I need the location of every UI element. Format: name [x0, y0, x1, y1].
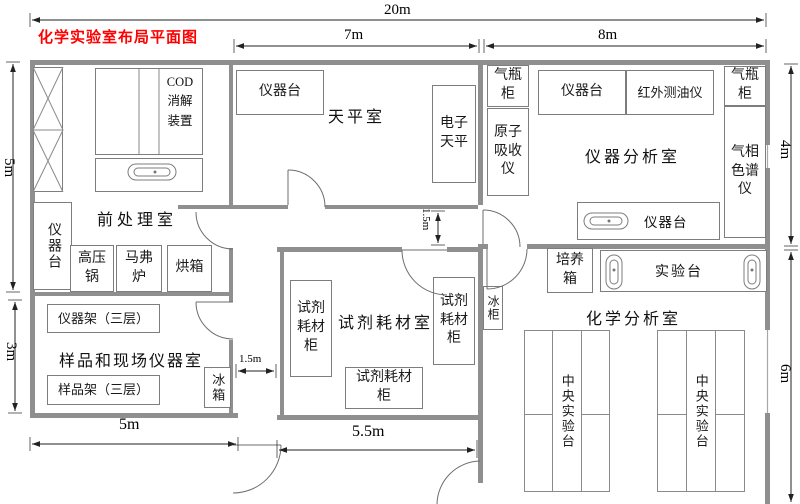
- atomic-absorption: 原子吸收仪: [487, 108, 529, 196]
- central-bench-1-split: [524, 414, 552, 415]
- central-bench-1-split: [581, 414, 610, 415]
- wall-pretreat-sample-divider: [30, 292, 233, 296]
- wall-pretreat-east-a: [229, 60, 233, 205]
- sample-rack: 样品架（三层）: [47, 375, 160, 405]
- reagent-cabinet-left: 试剂耗材柜: [290, 280, 332, 377]
- balance-instrument-bench: 仪器台: [236, 70, 324, 115]
- central-bench-1-label: 中央实验台: [552, 336, 582, 486]
- autoclave: 高压锅: [70, 245, 114, 292]
- fridge: 冰箱: [204, 367, 231, 408]
- room-label-reagent: 试剂耗材室: [338, 309, 433, 333]
- incubator: 培养箱: [547, 248, 593, 293]
- gas-chromatograph: 气相色谱仪: [724, 106, 766, 238]
- room-label-chemical: 化学分析室: [586, 305, 681, 329]
- dim-sample-width: 5m: [119, 416, 139, 434]
- plan-title: 化学实验室布局平面图: [38, 26, 198, 47]
- central-bench-2-label: 中央实验台: [686, 336, 716, 486]
- door-chemical: [487, 249, 527, 289]
- door-pretreatment: [196, 212, 233, 249]
- wall-hall-right: [478, 418, 483, 483]
- instrument-rack: 仪器架（三层）: [47, 304, 160, 333]
- door-balance: [288, 170, 325, 207]
- dim-sample-height: 3m: [2, 342, 19, 361]
- gas-cylinder-cabinet-right: 气瓶柜: [724, 66, 766, 106]
- wall-reagent-bottom: [277, 415, 482, 420]
- wall-corridor-top-a: [178, 205, 288, 209]
- pretreat-instrument-bench: 仪器台: [33, 202, 72, 290]
- wall-chemical-west: [478, 247, 483, 418]
- dim-balance-width: 7m: [344, 27, 363, 44]
- fume-cabinet-hatched: [33, 67, 63, 192]
- wall-top: [30, 60, 770, 65]
- dim-instrument-width: 8m: [598, 27, 617, 44]
- room-label-balance: 天平室: [328, 103, 385, 127]
- wall-balance-instrument-divider: [478, 60, 483, 205]
- oven: 烘箱: [167, 245, 212, 292]
- dim-total-width: 20m: [384, 2, 411, 19]
- lab-bench-label: 实验台: [655, 261, 703, 281]
- cod-digester-label: COD消解装置: [163, 73, 197, 131]
- dim-instrument-height: 4m: [776, 140, 793, 159]
- instrument-bench-top: 仪器台: [538, 70, 626, 115]
- infrared-oil-analyzer: 红外测油仪: [626, 70, 714, 115]
- wall-reagent-top-a: [277, 247, 402, 252]
- room-label-sample: 样品和现场仪器室: [59, 347, 203, 371]
- wall-right-d: [765, 413, 770, 504]
- room-label-pretreatment: 前处理室: [97, 206, 177, 230]
- gas-cylinder-cabinet-left: 气瓶柜: [487, 65, 529, 107]
- door-entrance-right: [437, 461, 480, 504]
- muffle-furnace: 马弗炉: [116, 245, 162, 292]
- dim-pretreat-height: 5m: [0, 158, 17, 177]
- electronic-balance: 电子天平: [432, 85, 476, 183]
- wall-reagent-top-b: [447, 247, 482, 252]
- instrument-bench-bottom-label: 仪器台: [644, 211, 688, 231]
- wall-pretreat-east-b: [229, 248, 233, 302]
- floor-plan: 化学实验室布局平面图 COD消解装置 仪器台 高压锅 马弗炉 烘箱 仪器台 电子…: [0, 0, 800, 504]
- room-label-instrument: 仪器分析室: [585, 143, 680, 167]
- door-sample: [196, 302, 233, 339]
- reagent-cabinet-right: 试剂耗材柜: [433, 277, 475, 365]
- door-entrance-left: [233, 445, 281, 493]
- dim-chemical-height: 6m: [776, 364, 793, 383]
- dim-corridor-width: 1.5m: [239, 353, 261, 365]
- door-instrument: [483, 210, 520, 247]
- dim-corridor-height: 1.5m: [420, 208, 432, 230]
- freezer: 冰柜: [483, 286, 503, 330]
- central-bench-2-split: [715, 414, 745, 415]
- central-bench-2-split: [657, 414, 686, 415]
- dim-hall-width: 5.5m: [352, 423, 384, 441]
- wall-reagent-west: [280, 248, 284, 418]
- wall-corridor-top-b: [325, 205, 478, 209]
- reagent-cabinet-bottom: 试剂耗材柜: [345, 367, 423, 409]
- pretreat-sink-bench: [95, 158, 203, 192]
